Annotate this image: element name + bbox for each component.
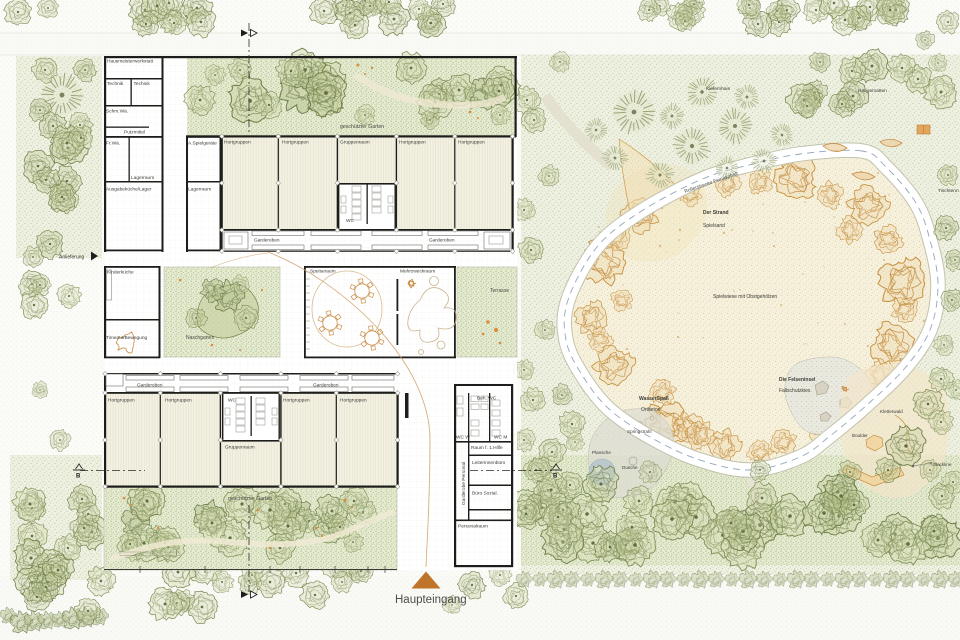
svg-text:B: B (76, 474, 81, 480)
svg-text:Personalraum: Personalraum (458, 524, 488, 530)
svg-text:Garderobe Personal: Garderobe Personal (461, 462, 467, 505)
svg-text:Hortgruppen: Hortgruppen (283, 398, 310, 404)
svg-text:Kiefernhain: Kiefernhain (706, 86, 731, 92)
svg-text:B: B (553, 474, 558, 480)
svg-text:Anlieferung: Anlieferung (59, 255, 85, 261)
svg-text:Slackline: Slackline (933, 462, 952, 467)
svg-text:geschützter Garten: geschützter Garten (340, 124, 384, 130)
svg-text:Technik: Technik (134, 81, 151, 87)
svg-text:Boulder: Boulder (852, 433, 868, 438)
svg-text:Putzmittel: Putzmittel (124, 130, 145, 136)
svg-text:Mehrzweckraum: Mehrzweckraum (400, 269, 435, 275)
svg-text:Timeout/Bewegung: Timeout/Bewegung (106, 335, 147, 341)
svg-text:Fallschutzkies: Fallschutzkies (779, 388, 811, 394)
svg-text:Spielwiese mit Obstgehölzen: Spielwiese mit Obstgehölzen (713, 294, 777, 300)
svg-text:WC: WC (228, 398, 237, 404)
svg-text:Speiseraum: Speiseraum (310, 269, 336, 275)
svg-text:Hortgruppen: Hortgruppen (340, 398, 367, 404)
svg-text:Lagerraum: Lagerraum (131, 175, 154, 181)
svg-text:Hortgruppen: Hortgruppen (108, 398, 135, 404)
svg-text:WasserSpaß: WasserSpaß (639, 396, 669, 402)
svg-text:Büro Sozial.: Büro Sozial. (472, 491, 498, 497)
svg-text:WC: WC (346, 218, 355, 224)
svg-text:Die Felseninsel: Die Felseninsel (779, 377, 816, 383)
svg-text:Leiterinnenbüro: Leiterinnenbüro (472, 460, 506, 466)
svg-text:Springstrahl: Springstrahl (627, 429, 652, 434)
svg-text:Plansche: Plansche (592, 450, 611, 455)
svg-text:Lagerraum: Lagerraum (188, 187, 211, 193)
svg-text:Haupteingang: Haupteingang (395, 594, 467, 606)
svg-text:Garderoben: Garderoben (137, 383, 163, 389)
svg-text:Der Strand: Der Strand (703, 210, 729, 216)
svg-text:Schm.Wä.: Schm.Wä. (106, 109, 128, 115)
svg-text:Garderoben: Garderoben (313, 383, 339, 389)
svg-text:Gruppenraum: Gruppenraum (225, 445, 255, 451)
svg-text:Gruppenraum: Gruppenraum (340, 140, 370, 146)
svg-text:WC W: WC W (456, 435, 470, 441)
svg-text:WC M: WC M (494, 435, 507, 441)
svg-text:Hortgruppen: Hortgruppen (224, 140, 251, 146)
svg-text:Hortgruppen: Hortgruppen (165, 398, 192, 404)
svg-text:Technik: Technik (107, 81, 124, 87)
svg-text:Garderoben: Garderoben (429, 238, 455, 244)
svg-text:A.Spielgeräte: A.Spielgeräte (188, 141, 217, 147)
svg-text:Hausmeisterwerkstatt: Hausmeisterwerkstatt (107, 59, 154, 65)
svg-text:Hängematten: Hängematten (858, 88, 887, 94)
svg-text:Ausgabeküche/Lager: Ausgabeküche/Lager (106, 187, 152, 193)
svg-text:Fr.Wä.: Fr.Wä. (106, 141, 120, 147)
svg-text:geschützter Garten: geschützter Garten (228, 496, 272, 502)
svg-text:Tischtenn: Tischtenn (938, 188, 959, 194)
svg-text:Garderoben: Garderoben (254, 238, 280, 244)
svg-text:Spielsand: Spielsand (703, 223, 725, 229)
svg-text:Terrasse: Terrasse (490, 288, 509, 294)
svg-text:Ortbeton: Ortbeton (641, 407, 661, 413)
svg-text:Kletterwald: Kletterwald (880, 409, 903, 414)
svg-text:Raum f. 1.Hilfe: Raum f. 1.Hilfe (471, 445, 503, 451)
svg-text:Beh. WC: Beh. WC (477, 396, 497, 402)
svg-text:Dusche: Dusche (622, 465, 638, 470)
svg-text:Naschgarten: Naschgarten (186, 335, 215, 341)
svg-text:Kinderküche: Kinderküche (107, 270, 134, 276)
svg-text:Hortgruppen: Hortgruppen (399, 140, 426, 146)
svg-text:Hortgruppen: Hortgruppen (458, 140, 485, 146)
svg-text:Hortgruppen: Hortgruppen (282, 140, 309, 146)
